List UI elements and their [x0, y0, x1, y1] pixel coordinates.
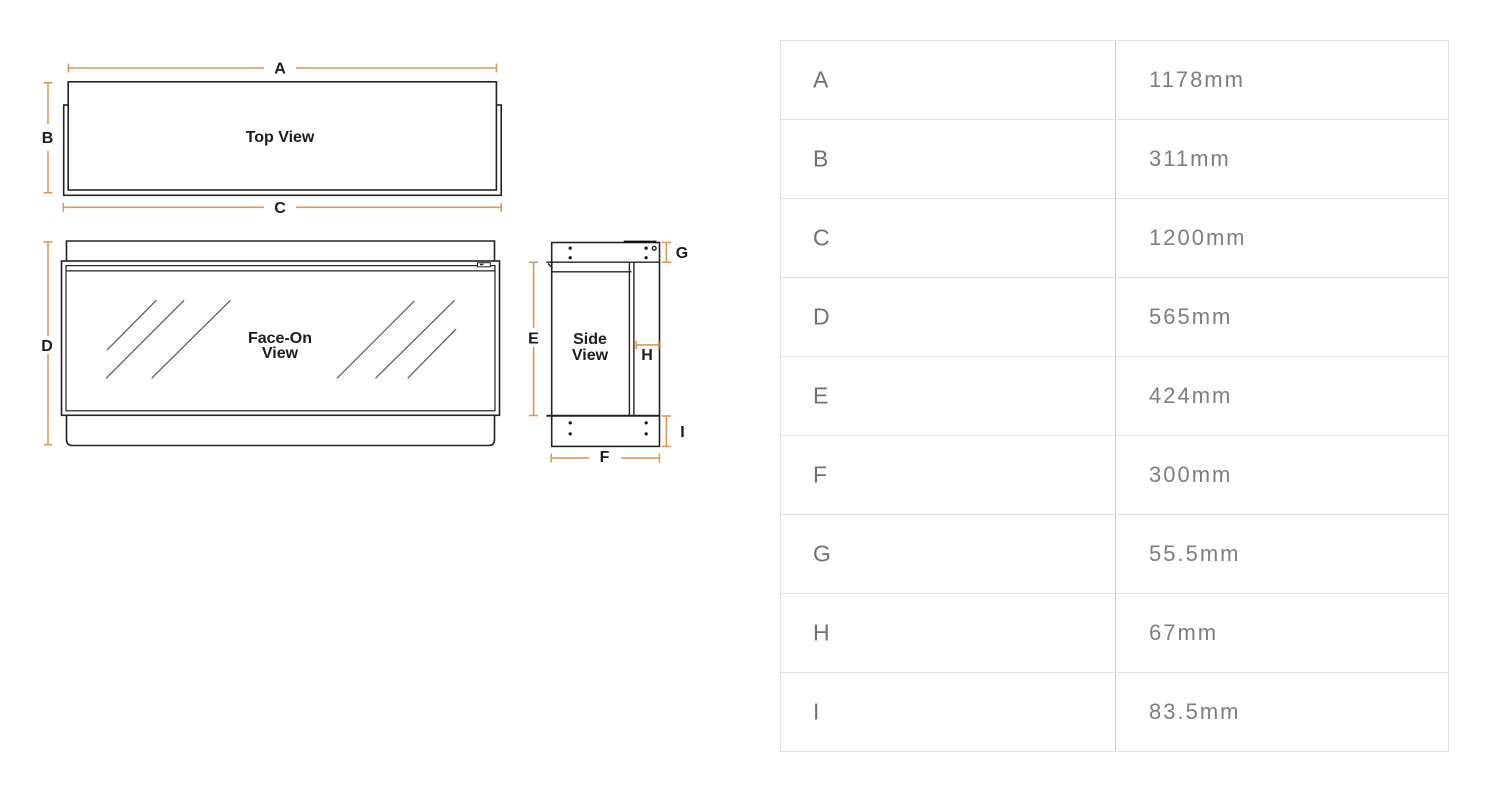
svg-text:G: G: [676, 245, 688, 262]
svg-text:F: F: [600, 449, 610, 466]
svg-text:A: A: [274, 61, 286, 78]
svg-text:B: B: [42, 130, 54, 147]
svg-text:Side: Side: [573, 331, 607, 348]
svg-text:View: View: [262, 345, 299, 362]
svg-text:Top View: Top View: [246, 129, 315, 146]
svg-text:E: E: [528, 331, 539, 348]
svg-text:D: D: [41, 338, 53, 355]
svg-text:H: H: [641, 347, 653, 364]
svg-text:View: View: [572, 347, 609, 364]
svg-text:I: I: [680, 424, 684, 441]
svg-text:C: C: [274, 200, 286, 217]
